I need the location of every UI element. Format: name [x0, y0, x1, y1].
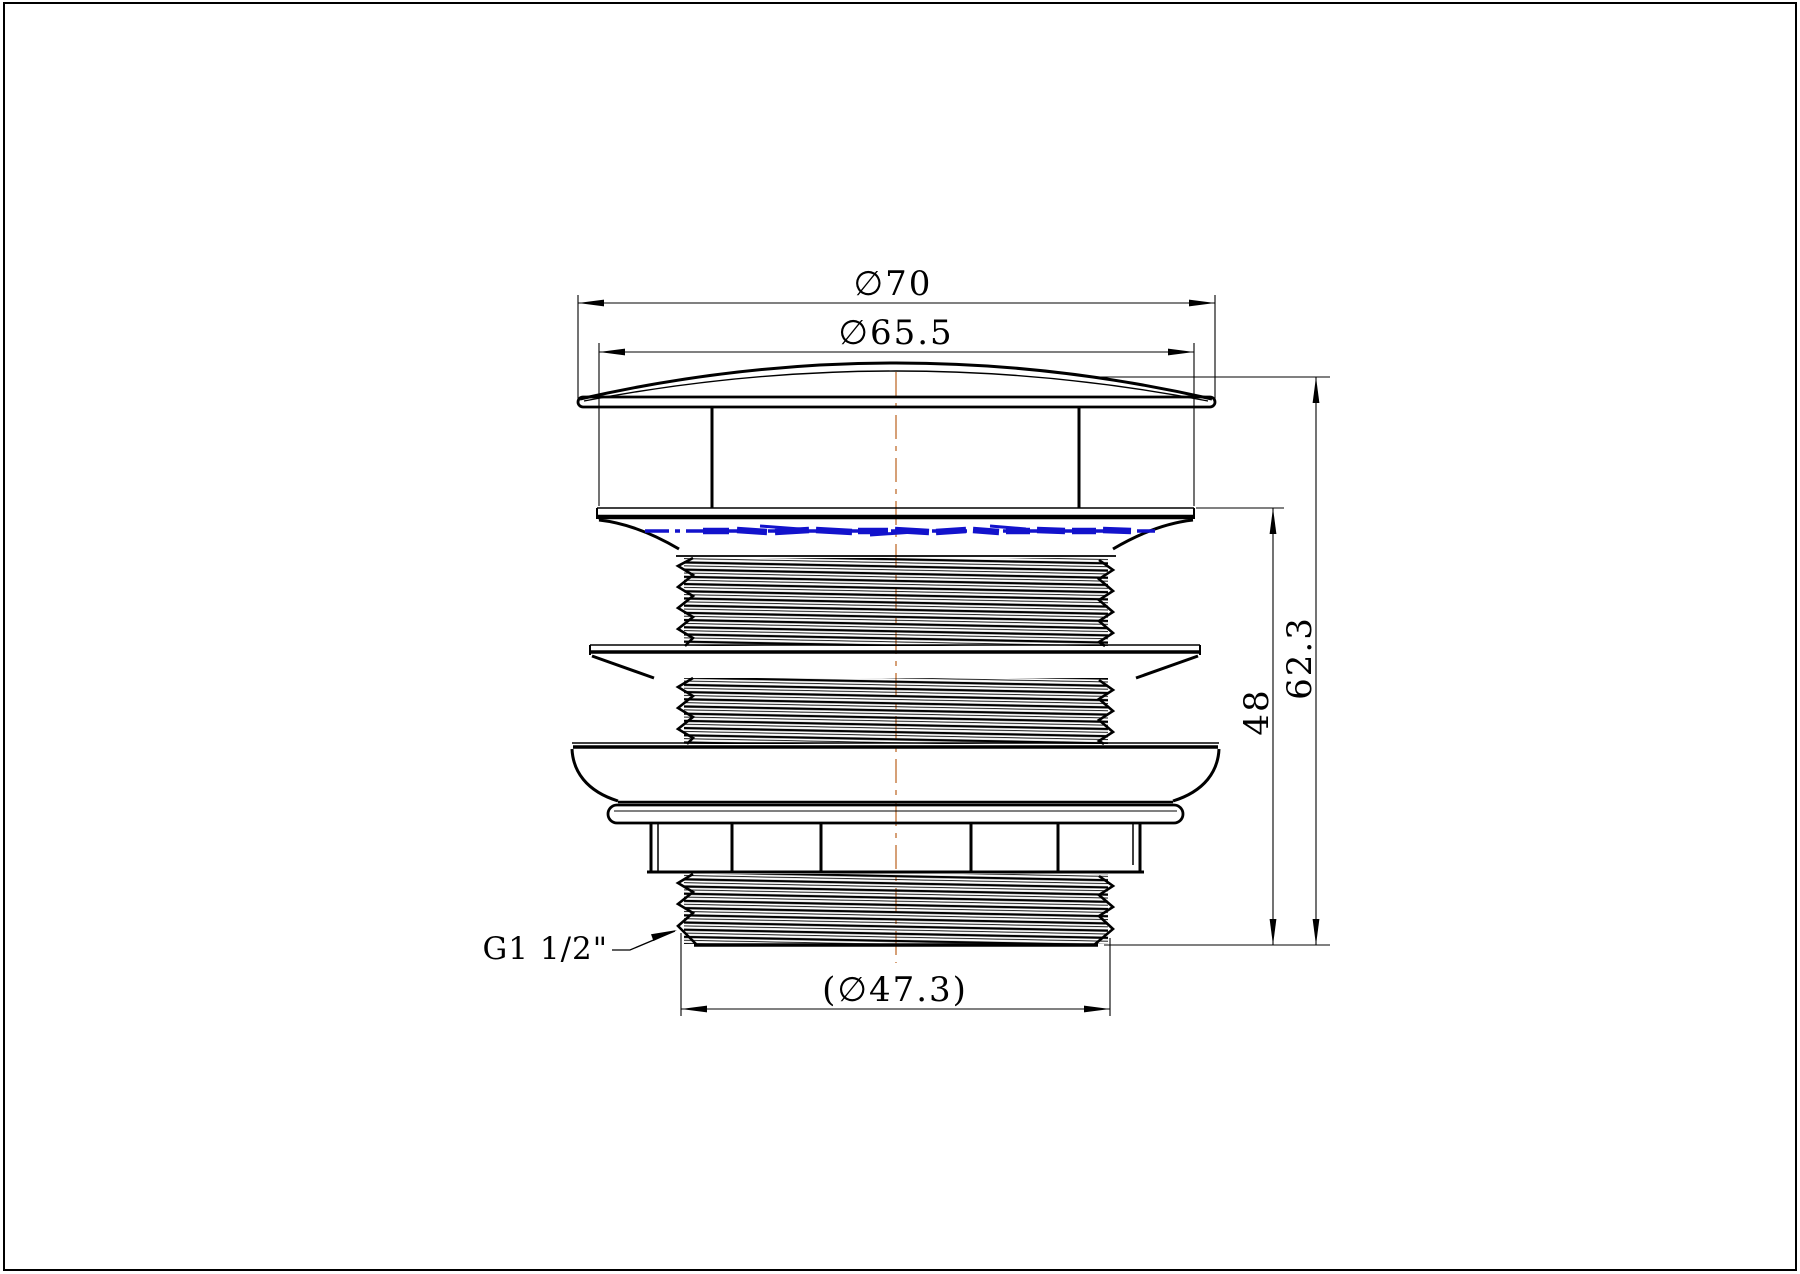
drawing-sheet: ∅70 ∅65.5 62.3 48: [0, 0, 1800, 1274]
sheet-border: [3, 2, 1797, 1271]
